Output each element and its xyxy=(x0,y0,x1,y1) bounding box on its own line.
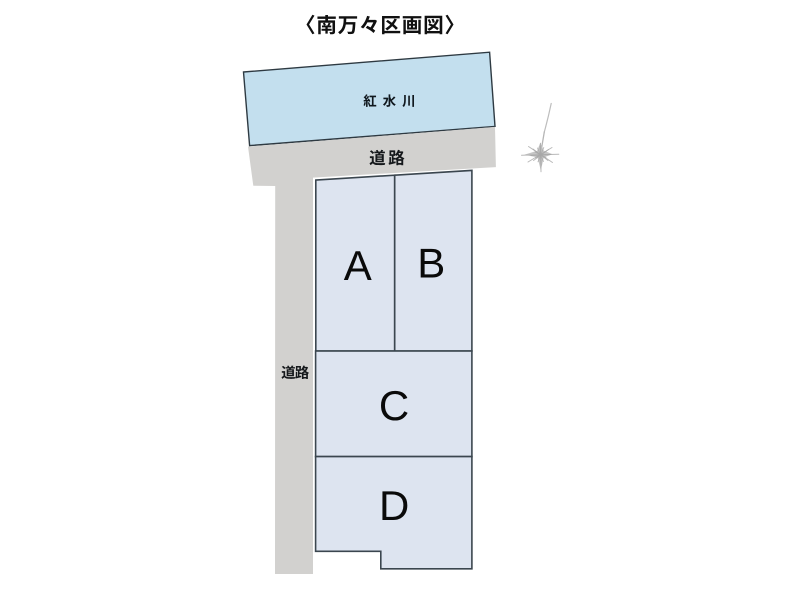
svg-text:B: B xyxy=(417,240,445,287)
svg-text:D: D xyxy=(379,482,409,529)
svg-text:A: A xyxy=(344,242,372,289)
svg-text:C: C xyxy=(379,382,409,429)
